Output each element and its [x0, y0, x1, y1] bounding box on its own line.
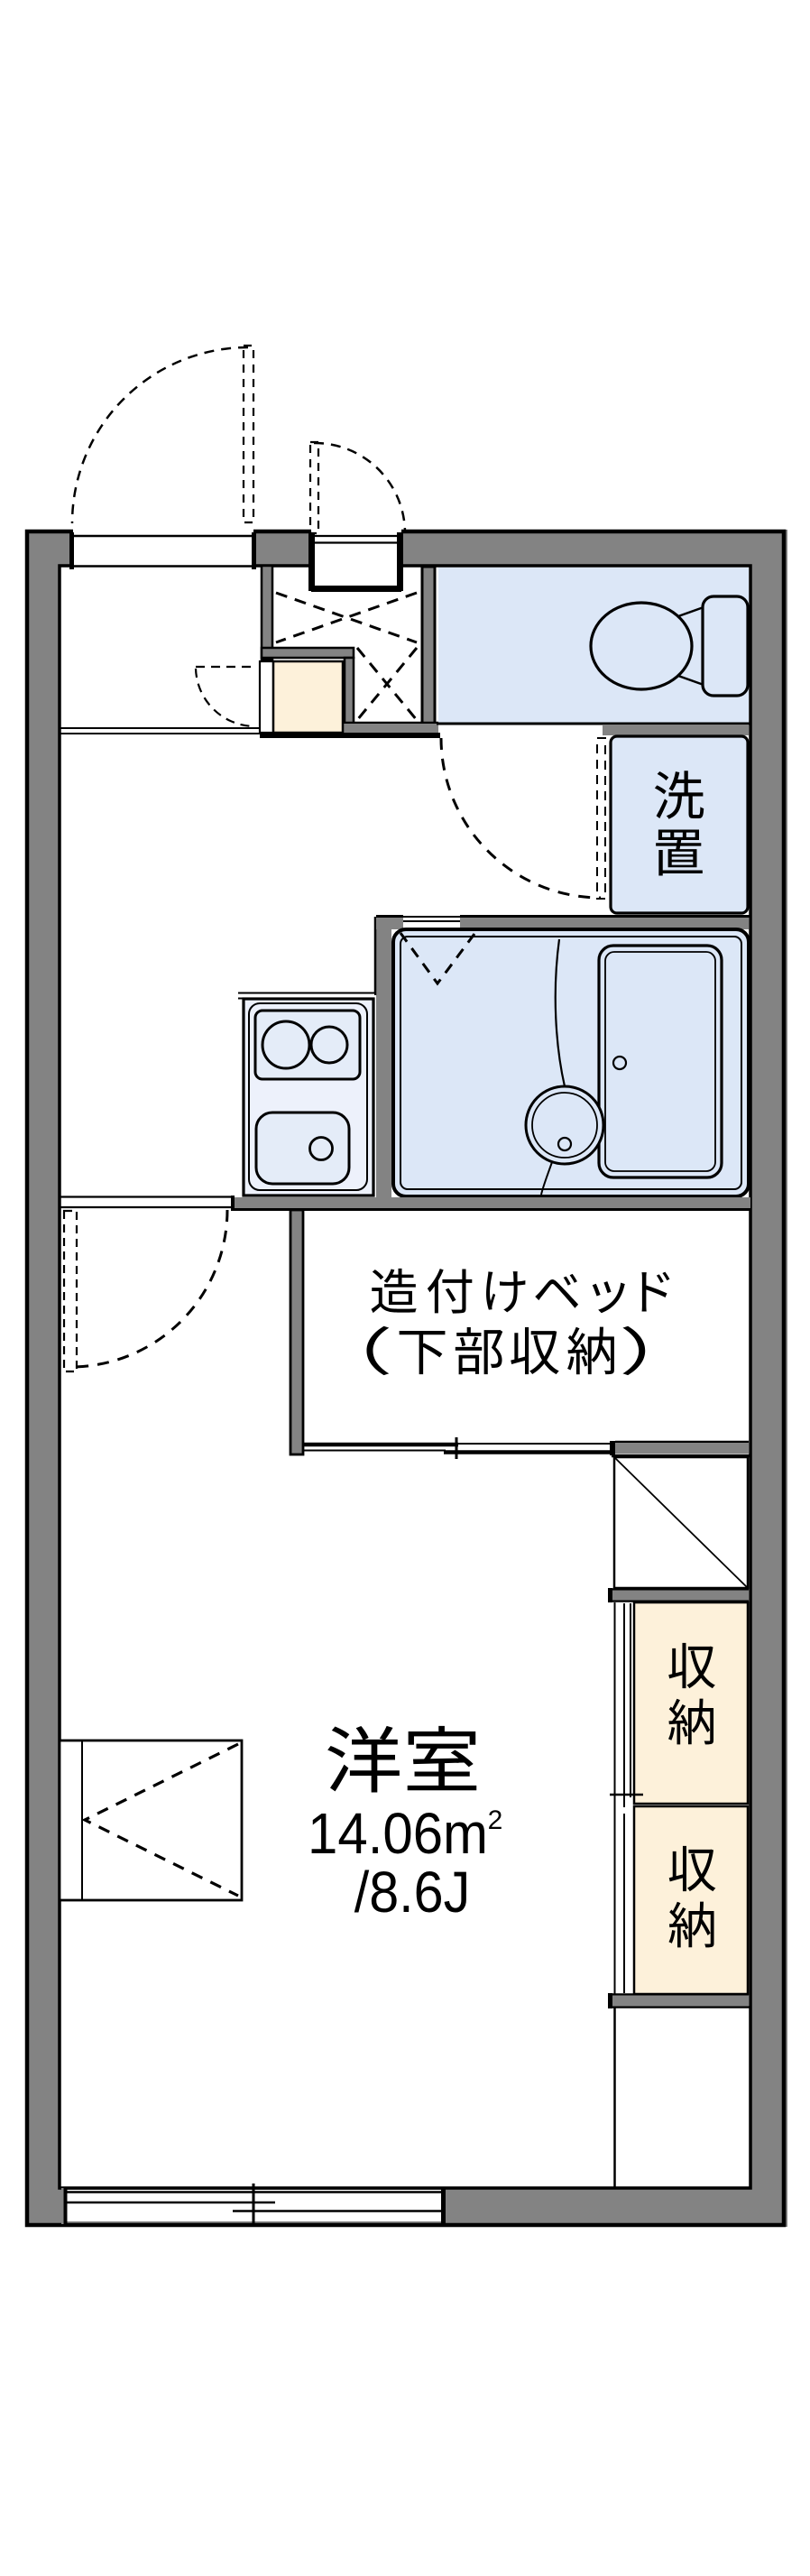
svg-text:14.06m: 14.06m [308, 1801, 488, 1866]
svg-text:2: 2 [488, 1805, 503, 1835]
svg-text:/8.6J: /8.6J [354, 1860, 471, 1925]
